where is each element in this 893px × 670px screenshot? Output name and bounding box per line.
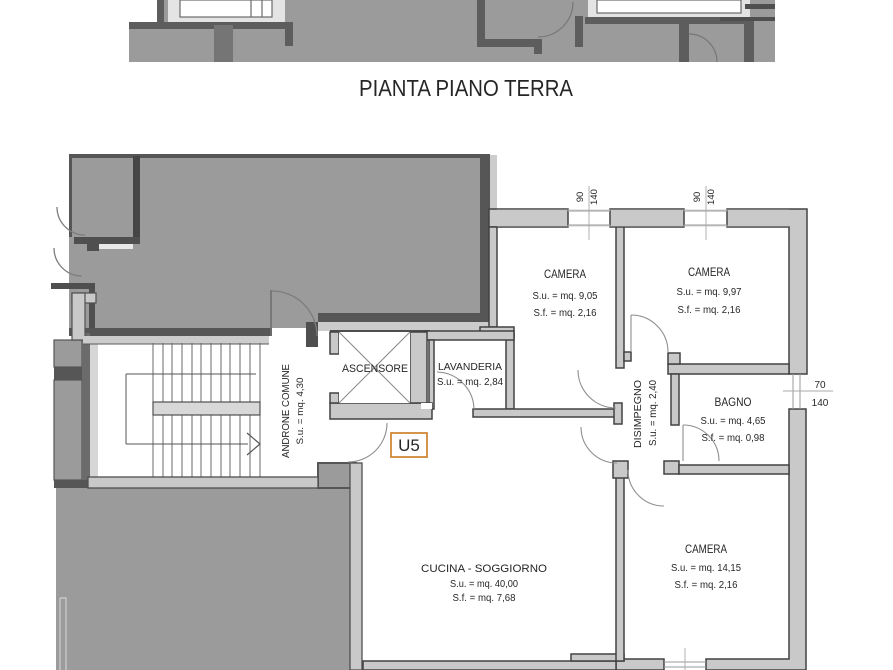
svg-text:S.u. = mq. 4,30: S.u. = mq. 4,30 xyxy=(295,378,306,445)
svg-text:S.u. = mq. 2,84: S.u. = mq. 2,84 xyxy=(437,377,503,388)
svg-text:ASCENSORE: ASCENSORE xyxy=(342,363,408,375)
svg-text:PIANTA PIANO TERRA: PIANTA PIANO TERRA xyxy=(359,75,574,101)
svg-text:CUCINA - SOGGIORNO: CUCINA - SOGGIORNO xyxy=(421,563,547,575)
svg-text:90: 90 xyxy=(575,192,586,203)
svg-text:70: 70 xyxy=(814,380,826,391)
svg-text:140: 140 xyxy=(706,189,717,205)
svg-text:140: 140 xyxy=(589,189,600,205)
svg-text:U5: U5 xyxy=(398,436,420,455)
svg-text:S.f. = mq. 7,68: S.f. = mq. 7,68 xyxy=(453,593,516,604)
svg-text:BAGNO: BAGNO xyxy=(715,397,752,409)
svg-text:S.u. = mq. 2,40: S.u. = mq. 2,40 xyxy=(648,380,659,446)
svg-text:S.f. = mq. 0,98: S.f. = mq. 0,98 xyxy=(702,433,765,444)
svg-text:CAMERA: CAMERA xyxy=(688,267,730,279)
svg-text:S.u. = mq. 4,65: S.u. = mq. 4,65 xyxy=(701,416,766,427)
svg-text:S.u. = mq. 9,05: S.u. = mq. 9,05 xyxy=(533,291,598,302)
svg-text:CAMERA: CAMERA xyxy=(685,544,727,556)
svg-text:ANDRONE COMUNE: ANDRONE COMUNE xyxy=(281,364,292,458)
svg-text:S.f. = mq. 2,16: S.f. = mq. 2,16 xyxy=(534,308,597,319)
svg-text:S.u. = mq. 40,00: S.u. = mq. 40,00 xyxy=(450,579,518,590)
svg-text:S.u. = mq. 14,15: S.u. = mq. 14,15 xyxy=(671,563,741,574)
svg-text:90: 90 xyxy=(692,192,703,203)
svg-text:S.f. = mq. 2,16: S.f. = mq. 2,16 xyxy=(678,305,741,316)
svg-text:DISIMPEGNO: DISIMPEGNO xyxy=(632,380,644,448)
svg-text:CAMERA: CAMERA xyxy=(544,269,586,281)
svg-text:S.f. = mq. 2,16: S.f. = mq. 2,16 xyxy=(675,580,738,591)
svg-text:LAVANDERIA: LAVANDERIA xyxy=(438,361,502,373)
svg-text:S.u. = mq. 9,97: S.u. = mq. 9,97 xyxy=(677,287,742,298)
svg-text:140: 140 xyxy=(812,398,829,409)
